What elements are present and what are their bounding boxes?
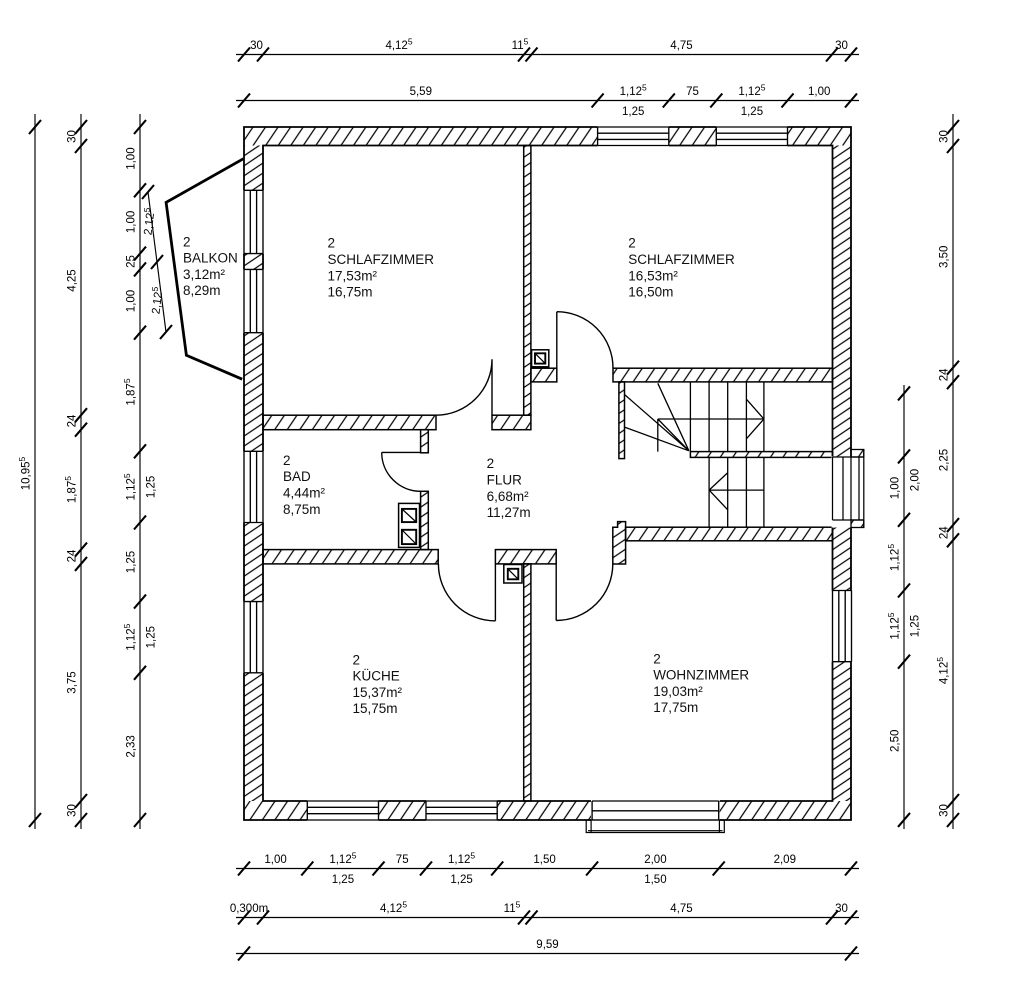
svg-text:17,53m²: 17,53m² xyxy=(328,268,378,283)
svg-text:2,09: 2,09 xyxy=(774,854,796,866)
svg-text:1,00: 1,00 xyxy=(126,211,138,233)
svg-text:16,50m: 16,50m xyxy=(628,285,673,300)
svg-text:2,00: 2,00 xyxy=(644,854,666,866)
svg-text:30: 30 xyxy=(939,130,951,143)
svg-text:1,25: 1,25 xyxy=(146,476,158,498)
svg-text:1,00: 1,00 xyxy=(890,477,902,499)
svg-text:0,300m: 0,300m xyxy=(230,903,268,915)
svg-text:2: 2 xyxy=(487,456,495,471)
svg-text:1,25: 1,25 xyxy=(146,626,158,648)
svg-text:1,25: 1,25 xyxy=(741,106,763,118)
svg-text:15,75m: 15,75m xyxy=(353,701,398,716)
svg-text:24: 24 xyxy=(939,526,951,539)
svg-text:4,44m²: 4,44m² xyxy=(283,486,326,501)
svg-text:24: 24 xyxy=(67,414,79,427)
svg-text:2: 2 xyxy=(353,652,361,667)
svg-text:17,75m: 17,75m xyxy=(653,700,698,715)
svg-text:8,75m: 8,75m xyxy=(283,502,321,517)
svg-text:KÜCHE: KÜCHE xyxy=(353,669,400,684)
svg-text:1,25: 1,25 xyxy=(450,874,472,886)
svg-text:24: 24 xyxy=(939,368,951,381)
svg-text:15,37m²: 15,37m² xyxy=(353,685,403,700)
svg-text:1,00: 1,00 xyxy=(808,86,830,98)
svg-text:16,53m²: 16,53m² xyxy=(628,268,678,283)
svg-text:1,25: 1,25 xyxy=(332,874,354,886)
svg-text:24: 24 xyxy=(67,549,79,562)
svg-text:30: 30 xyxy=(835,40,848,52)
svg-text:8,29m: 8,29m xyxy=(183,283,221,298)
svg-text:SCHLAFZIMMER: SCHLAFZIMMER xyxy=(628,252,735,267)
svg-text:30: 30 xyxy=(835,903,848,915)
svg-text:2,50: 2,50 xyxy=(890,730,902,752)
svg-text:75: 75 xyxy=(396,854,409,866)
svg-text:9,59: 9,59 xyxy=(536,939,558,951)
svg-text:3,75: 3,75 xyxy=(67,671,79,693)
svg-text:WOHNZIMMER: WOHNZIMMER xyxy=(653,668,749,683)
svg-text:5,59: 5,59 xyxy=(410,86,432,98)
svg-text:30: 30 xyxy=(67,804,79,817)
svg-text:FLUR: FLUR xyxy=(487,473,523,488)
svg-text:1,25: 1,25 xyxy=(126,551,138,573)
svg-text:3,12m²: 3,12m² xyxy=(183,267,226,282)
svg-text:1,00: 1,00 xyxy=(126,147,138,169)
svg-text:11,27m: 11,27m xyxy=(487,505,531,520)
svg-text:1,25: 1,25 xyxy=(910,615,922,637)
svg-text:1,25: 1,25 xyxy=(622,106,644,118)
svg-text:4,25: 4,25 xyxy=(67,269,79,291)
svg-text:2: 2 xyxy=(283,453,291,468)
svg-text:2: 2 xyxy=(628,236,636,251)
svg-text:2,25: 2,25 xyxy=(939,449,951,471)
svg-text:75: 75 xyxy=(686,86,699,98)
svg-text:16,75m: 16,75m xyxy=(328,285,373,300)
svg-text:1,00: 1,00 xyxy=(126,290,138,312)
svg-text:30: 30 xyxy=(67,130,79,143)
svg-text:2,00: 2,00 xyxy=(910,469,922,491)
svg-text:1,50: 1,50 xyxy=(533,854,555,866)
svg-text:BALKON: BALKON xyxy=(183,251,238,266)
svg-text:19,03m²: 19,03m² xyxy=(653,684,703,699)
svg-text:1,50: 1,50 xyxy=(644,874,666,886)
svg-text:4,75: 4,75 xyxy=(670,903,692,915)
svg-text:SCHLAFZIMMER: SCHLAFZIMMER xyxy=(328,252,435,267)
svg-text:2: 2 xyxy=(328,236,336,251)
svg-text:1,00: 1,00 xyxy=(264,854,286,866)
svg-text:6,68m²: 6,68m² xyxy=(487,489,530,504)
svg-text:4,75: 4,75 xyxy=(670,40,692,52)
svg-text:30: 30 xyxy=(250,40,263,52)
svg-text:25: 25 xyxy=(126,255,138,268)
svg-text:BAD: BAD xyxy=(283,469,311,484)
svg-text:2,33: 2,33 xyxy=(126,735,138,757)
svg-text:2: 2 xyxy=(183,234,191,249)
svg-text:2: 2 xyxy=(653,651,661,666)
svg-text:30: 30 xyxy=(939,804,951,817)
svg-text:3,50: 3,50 xyxy=(939,246,951,268)
